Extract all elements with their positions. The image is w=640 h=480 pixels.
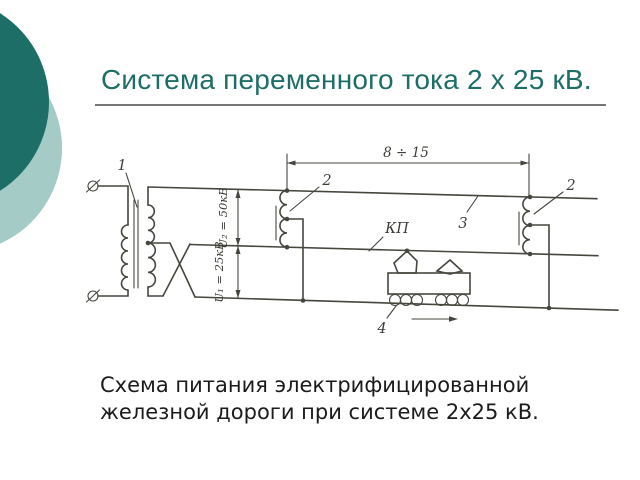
contact-wire-label-group: КП xyxy=(369,221,409,251)
autotransformer-left-label: 2 xyxy=(321,173,331,189)
span-length-label: 8 ÷ 15 xyxy=(383,145,429,161)
autotransformer-left: 2 xyxy=(276,173,332,303)
transformer-label-group: 1 xyxy=(117,158,137,207)
contact-wire-label: КП xyxy=(384,221,409,237)
direction-arrow xyxy=(412,316,458,321)
voltage-lower-label: U₁ = 25кВ xyxy=(212,241,226,302)
transformer-core xyxy=(134,200,138,288)
autotransformer-right-label: 2 xyxy=(565,178,575,194)
contact-wire xyxy=(190,245,598,256)
rail-wire xyxy=(195,297,618,310)
caption-line-2: железной дороги при системе 2х25 кВ. xyxy=(100,399,570,426)
pantograph-raised-icon xyxy=(394,249,417,274)
voltage-upper-label: U₂ = 50кВ xyxy=(216,187,230,248)
feeder-wire-label: 3 xyxy=(458,216,467,232)
transformer-label: 1 xyxy=(117,158,126,174)
slide-caption: Схема питания электрифицированной железн… xyxy=(100,372,570,426)
locomotive-label-group: 4 xyxy=(376,306,396,337)
feeder-wire-label-group: 3 xyxy=(458,196,478,232)
pantograph-lowered-icon xyxy=(437,260,462,274)
locomotive: 4 xyxy=(376,249,470,338)
supply-transformer xyxy=(98,186,155,296)
caption-line-1: Схема питания электрифицированной xyxy=(100,372,570,399)
locomotive-label: 4 xyxy=(376,321,386,337)
